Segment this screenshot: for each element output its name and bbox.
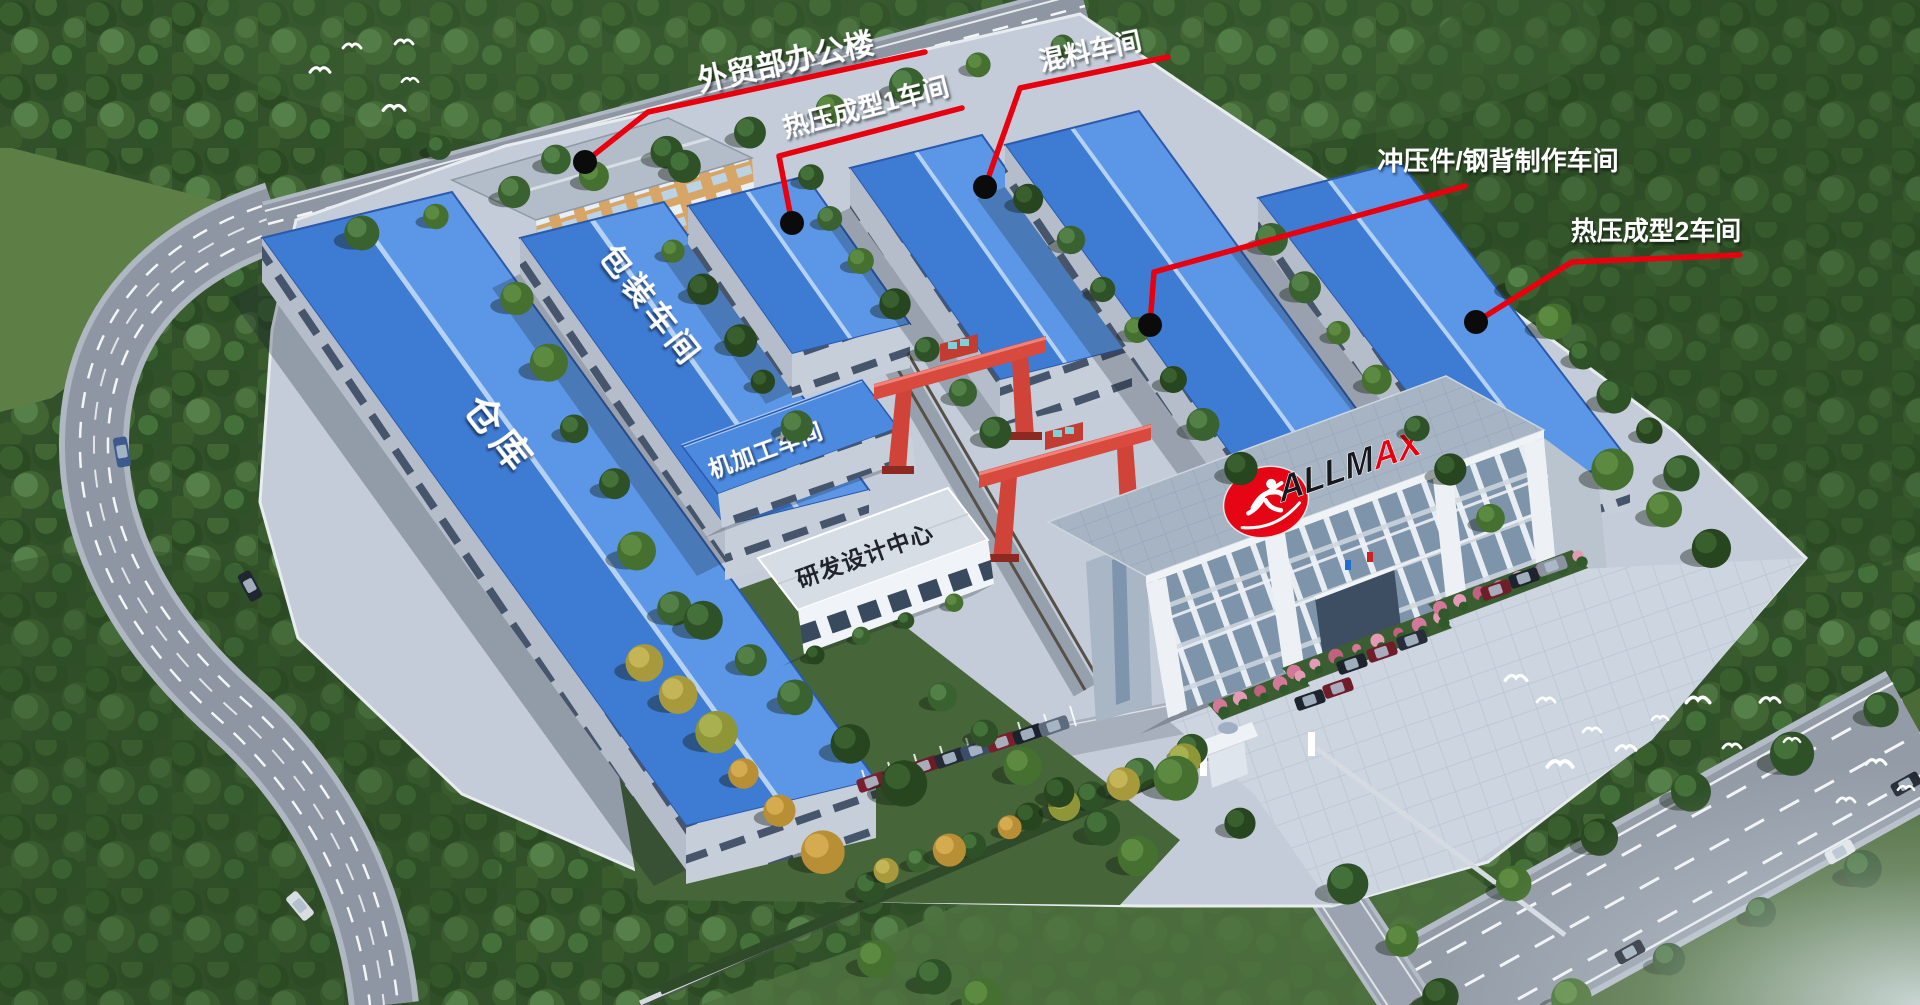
callout-label: 冲压件/钢背制作车间 bbox=[1377, 146, 1618, 176]
callout-dot bbox=[1464, 310, 1488, 334]
callout-dot bbox=[1138, 313, 1162, 337]
callout-dot bbox=[973, 175, 997, 199]
callout-dot bbox=[573, 150, 597, 174]
callout-dot bbox=[780, 211, 804, 235]
shrub bbox=[1576, 556, 1587, 567]
factory-campus-scene: 仓库 包装车间 bbox=[0, 0, 1920, 1005]
scene-canvas: 仓库 包装车间 bbox=[0, 0, 1920, 1005]
atmospheric-haze bbox=[1100, 600, 1920, 1005]
callout-label: 热压成型2车间 bbox=[1571, 216, 1741, 246]
